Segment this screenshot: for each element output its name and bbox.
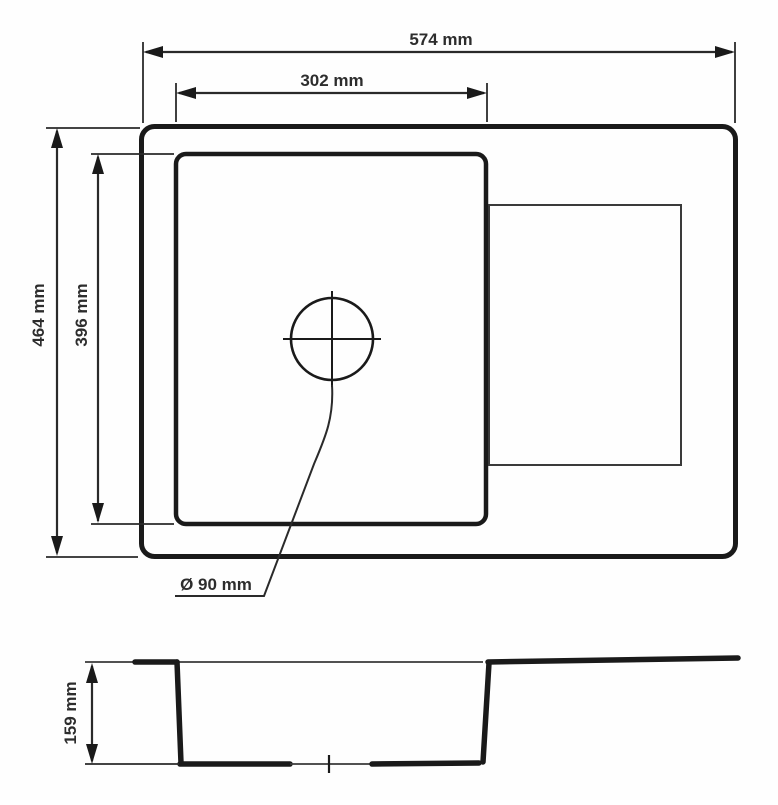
dimension-label-drain-diameter: Ø 90 mm bbox=[180, 575, 252, 594]
arrowhead-down-icon bbox=[86, 744, 98, 764]
dimension-bowl-depth: 396 mm bbox=[72, 154, 174, 524]
dimension-label-bowl-height: 159 mm bbox=[61, 681, 80, 744]
dimension-bowl-height: 159 mm bbox=[61, 663, 98, 764]
arrowhead-right-icon bbox=[467, 87, 487, 99]
drainer-outline bbox=[489, 205, 681, 465]
arrowhead-up-icon bbox=[86, 663, 98, 683]
arrowhead-left-icon bbox=[176, 87, 196, 99]
dimension-label-bowl-depth: 396 mm bbox=[72, 283, 91, 346]
drain-leader-line bbox=[175, 385, 332, 596]
bowl-bottom-profile bbox=[372, 763, 479, 764]
dimension-bowl-width: 302 mm bbox=[176, 71, 487, 122]
bowl-left-wall-profile bbox=[177, 662, 181, 763]
dimension-label-overall-width: 574 mm bbox=[409, 30, 472, 49]
sink-outline bbox=[142, 127, 736, 557]
top-view bbox=[142, 127, 736, 597]
arrowhead-right-icon bbox=[715, 46, 735, 58]
dimension-label-bowl-width: 302 mm bbox=[300, 71, 363, 90]
dimension-label-overall-depth: 464 mm bbox=[29, 283, 48, 346]
bowl-right-wall-profile bbox=[483, 663, 489, 762]
arrowhead-up-icon bbox=[51, 128, 63, 148]
arrowhead-down-icon bbox=[51, 536, 63, 556]
technical-drawing-page: 574 mm 302 mm 464 mm 396 mm Ø 90 mm bbox=[0, 0, 778, 800]
drainer-surface-profile bbox=[488, 658, 738, 662]
arrowhead-down-icon bbox=[92, 503, 104, 523]
side-view bbox=[85, 658, 738, 773]
sink-dimension-diagram: 574 mm 302 mm 464 mm 396 mm Ø 90 mm bbox=[0, 0, 778, 800]
arrowhead-up-icon bbox=[92, 154, 104, 174]
arrowhead-left-icon bbox=[143, 46, 163, 58]
dimension-overall-width: 574 mm bbox=[143, 30, 735, 123]
